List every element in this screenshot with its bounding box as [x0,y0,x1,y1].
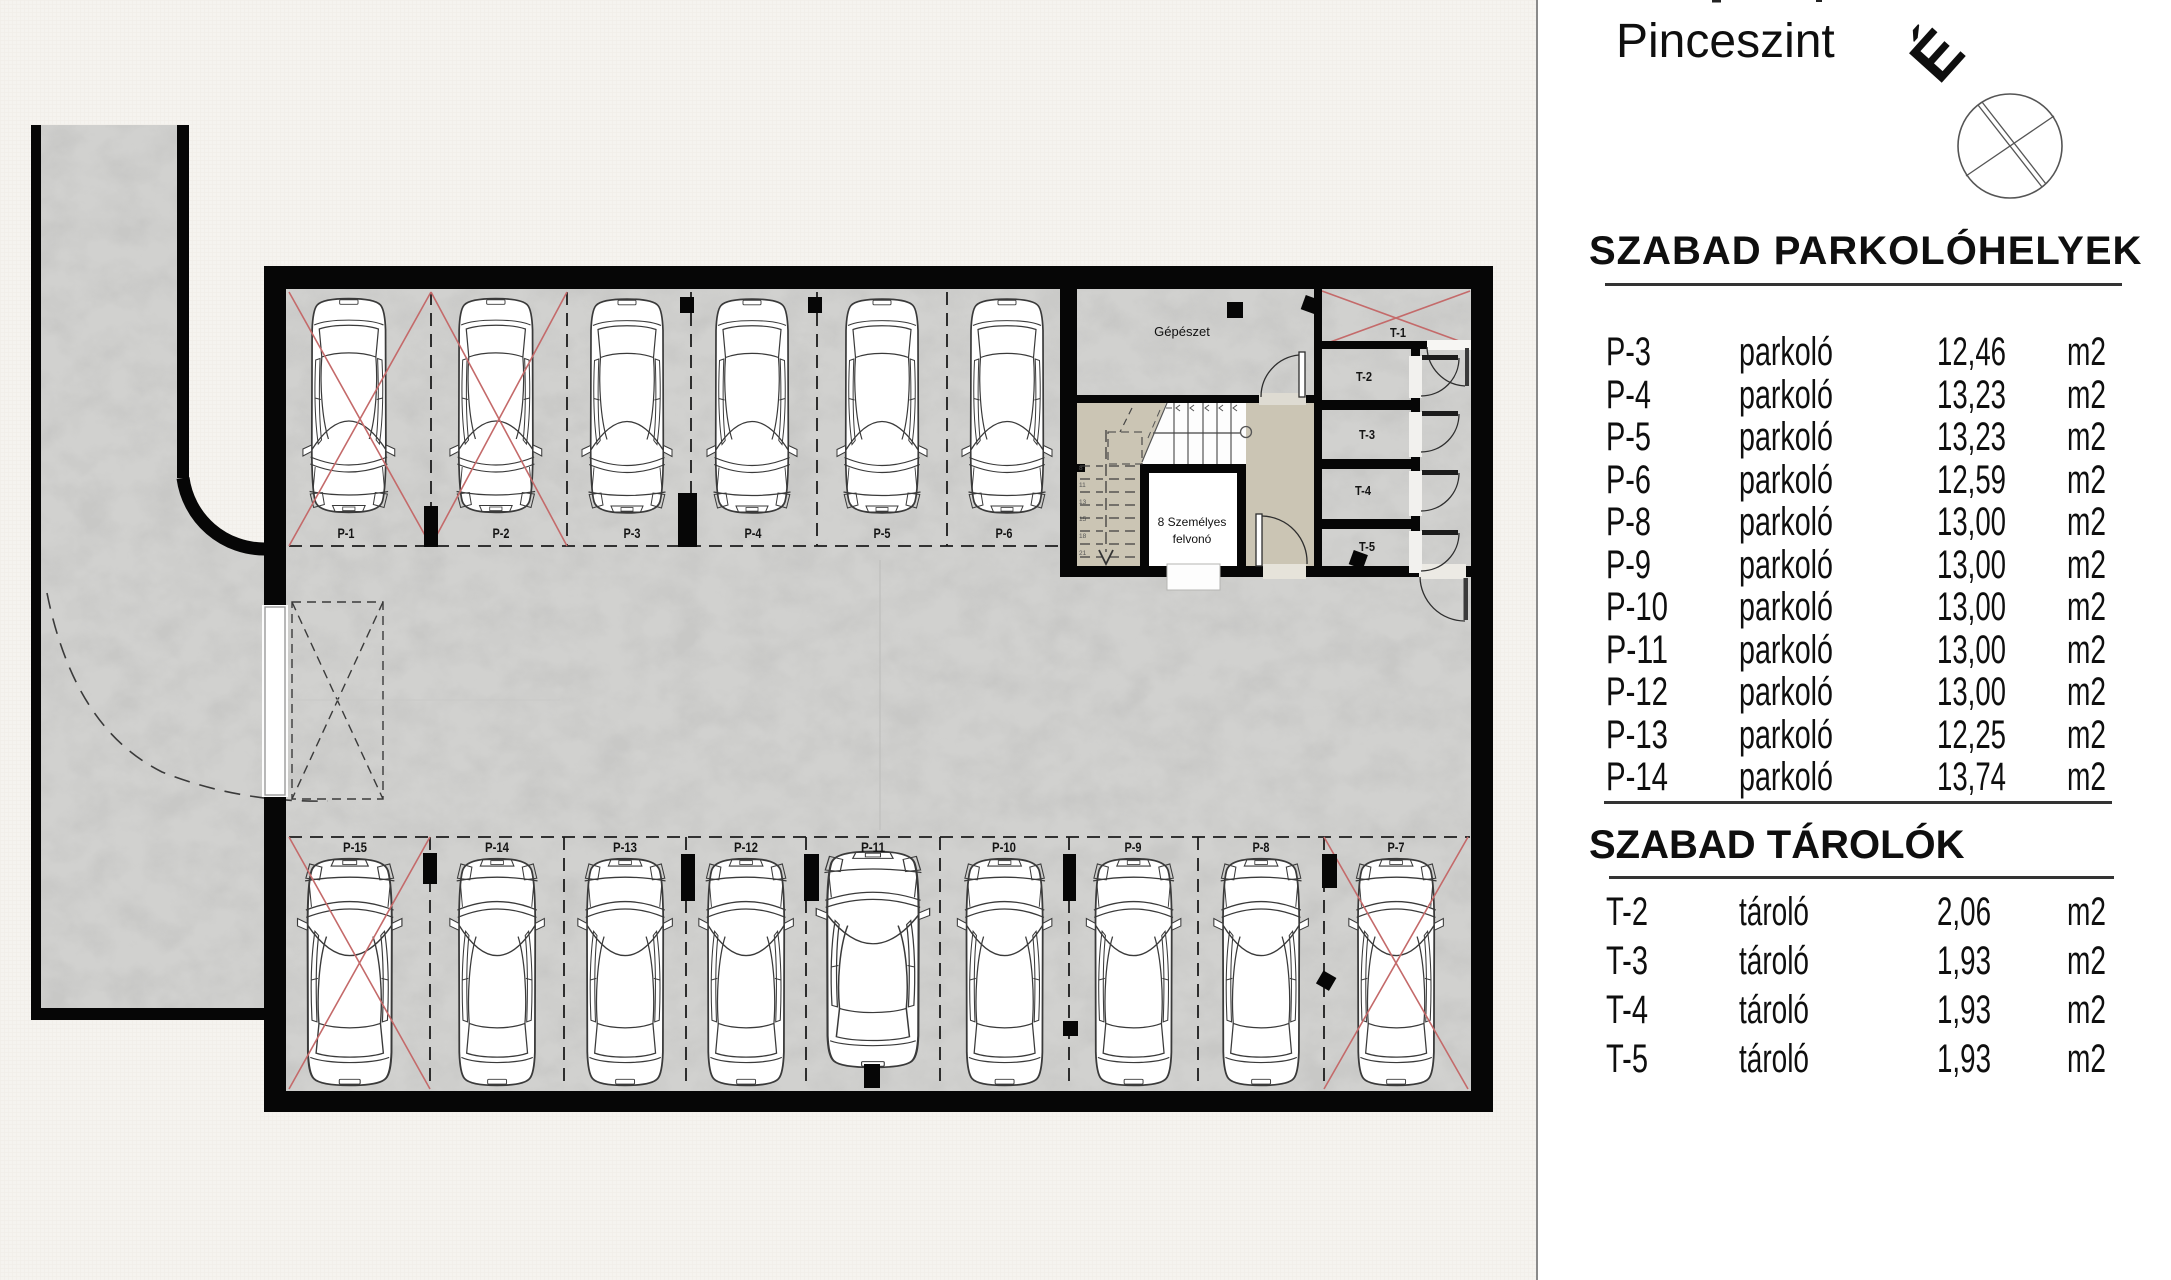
svg-text:T-2: T-2 [1606,890,1648,934]
svg-text:P-11: P-11 [861,839,885,855]
svg-text:P-2: P-2 [493,525,510,541]
svg-text:m2: m2 [2067,458,2106,502]
svg-text:P-14: P-14 [1606,755,1668,799]
svg-text:P-6: P-6 [1606,458,1651,502]
svg-text:P-6: P-6 [996,525,1013,541]
svg-text:m2: m2 [2067,988,2106,1032]
svg-text:parkoló: parkoló [1739,755,1833,799]
svg-text:8 Személyes: 8 Személyes [1158,515,1227,529]
svg-text:m2: m2 [2067,585,2106,629]
svg-text:13,23: 13,23 [1937,415,2006,459]
svg-text:P-3: P-3 [1606,330,1651,374]
svg-text:P-13: P-13 [1606,713,1668,757]
svg-text:P-1: P-1 [338,525,355,541]
svg-text:parkoló: parkoló [1739,543,1833,587]
svg-text:13,00: 13,00 [1937,543,2006,587]
svg-text:1,93: 1,93 [1937,1037,1991,1081]
svg-text:felvonó: felvonó [1173,532,1212,546]
svg-text:m2: m2 [2067,543,2106,587]
svg-text:m2: m2 [2067,890,2106,934]
svg-text:P-8: P-8 [1606,500,1651,544]
svg-text:13,74: 13,74 [1937,755,2006,799]
svg-text:m2: m2 [2067,755,2106,799]
svg-text:13,23: 13,23 [1937,373,2006,417]
svg-text:parkoló: parkoló [1739,458,1833,502]
svg-text:Pinceszint: Pinceszint [1616,15,1835,68]
svg-text:tároló: tároló [1739,1037,1809,1081]
svg-text:P-15: P-15 [343,839,367,855]
svg-text:P-13: P-13 [613,839,637,855]
svg-text:m2: m2 [2067,939,2106,983]
svg-text:P-10: P-10 [1606,585,1668,629]
svg-text:1,93: 1,93 [1937,939,1991,983]
svg-text:12,46: 12,46 [1937,330,2006,374]
svg-text:T-3: T-3 [1359,427,1375,442]
svg-text:parkoló: parkoló [1739,330,1833,374]
svg-text:m2: m2 [2067,373,2106,417]
svg-text:m2: m2 [2067,628,2106,672]
svg-text:tároló: tároló [1739,939,1809,983]
svg-text:T-2: T-2 [1356,369,1372,384]
svg-text:P-9: P-9 [1606,543,1651,587]
svg-text:SZABAD PARKOLÓHELYEK: SZABAD PARKOLÓHELYEK [1589,227,2142,273]
svg-text:11: 11 [1079,482,1086,489]
svg-text:P-11: P-11 [1606,628,1668,672]
svg-text:P-14: P-14 [485,839,509,855]
svg-text:parkoló: parkoló [1739,628,1833,672]
svg-text:21: 21 [1079,550,1087,557]
svg-text:13,00: 13,00 [1937,670,2006,714]
svg-text:P-10: P-10 [992,839,1016,855]
svg-text:Gépészet: Gépészet [1154,324,1210,339]
svg-text:P-8: P-8 [1253,839,1270,855]
svg-text:13,00: 13,00 [1937,585,2006,629]
svg-text:m2: m2 [2067,713,2106,757]
svg-text:parkoló: parkoló [1739,670,1833,714]
svg-text:P-4: P-4 [745,525,762,541]
svg-text:12,59: 12,59 [1937,458,2006,502]
svg-text:parkoló: parkoló [1739,500,1833,544]
svg-text:1,93: 1,93 [1937,988,1991,1032]
svg-text:T-4: T-4 [1355,483,1372,498]
svg-text:parkoló: parkoló [1739,585,1833,629]
svg-text:P-5: P-5 [874,525,891,541]
svg-text:13,00: 13,00 [1937,500,2006,544]
svg-text:P-9: P-9 [1125,839,1142,855]
svg-text:tároló: tároló [1739,988,1809,1032]
svg-text:P-12: P-12 [734,839,758,855]
svg-text:T-3: T-3 [1606,939,1648,983]
svg-text:m2: m2 [2067,1037,2106,1081]
svg-text:parkoló: parkoló [1739,713,1833,757]
svg-text:SZABAD TÁROLÓK: SZABAD TÁROLÓK [1589,821,1965,867]
svg-text:2,06: 2,06 [1937,890,1991,934]
svg-text:P-3: P-3 [624,525,641,541]
svg-text:P-4: P-4 [1606,373,1651,417]
svg-text:tároló: tároló [1739,890,1809,934]
svg-text:18: 18 [1079,533,1087,540]
svg-text:T-5: T-5 [1359,539,1375,554]
svg-text:m2: m2 [2067,670,2106,714]
svg-text:12,25: 12,25 [1937,713,2006,757]
svg-text:P-5: P-5 [1606,415,1651,459]
svg-text:P-7: P-7 [1388,839,1405,855]
svg-text:parkoló: parkoló [1739,373,1833,417]
svg-text:T-4: T-4 [1606,988,1648,1032]
svg-text:m2: m2 [2067,500,2106,544]
svg-text:13,00: 13,00 [1937,628,2006,672]
svg-text:m2: m2 [2067,330,2106,374]
svg-text:P-12: P-12 [1606,670,1668,714]
svg-text:parkoló: parkoló [1739,415,1833,459]
svg-text:m2: m2 [2067,415,2106,459]
svg-text:T-1: T-1 [1390,325,1406,340]
svg-text:T-5: T-5 [1606,1037,1648,1081]
svg-text:15: 15 [1079,516,1087,523]
